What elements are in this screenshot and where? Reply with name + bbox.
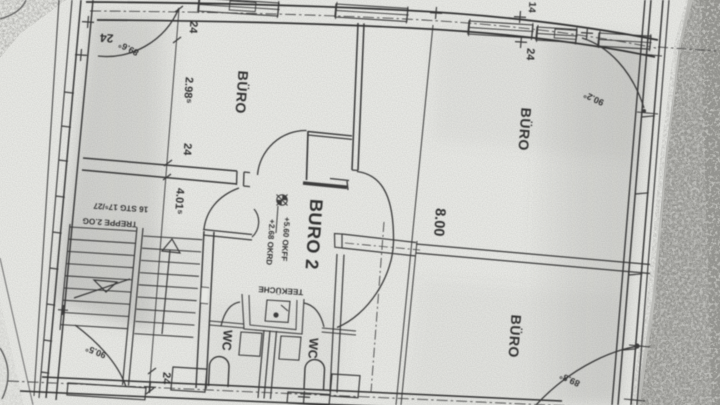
svg-text:24: 24 [160,372,173,386]
svg-text:24: 24 [187,21,200,35]
svg-text:2.98⁵: 2.98⁵ [181,77,195,104]
svg-text:24: 24 [181,143,194,157]
svg-text:BÜRO: BÜRO [505,314,524,358]
svg-text:8.00: 8.00 [430,208,448,237]
svg-text:BÜRO: BÜRO [515,107,534,151]
svg-text:WC: WC [305,337,320,359]
svg-text:24: 24 [99,31,114,46]
svg-text:BÜRO: BÜRO [232,70,251,114]
svg-text:24: 24 [524,48,537,62]
svg-text:4.01⁵: 4.01⁵ [172,188,186,215]
svg-text:WC: WC [219,329,234,351]
svg-text:14: 14 [526,1,538,13]
